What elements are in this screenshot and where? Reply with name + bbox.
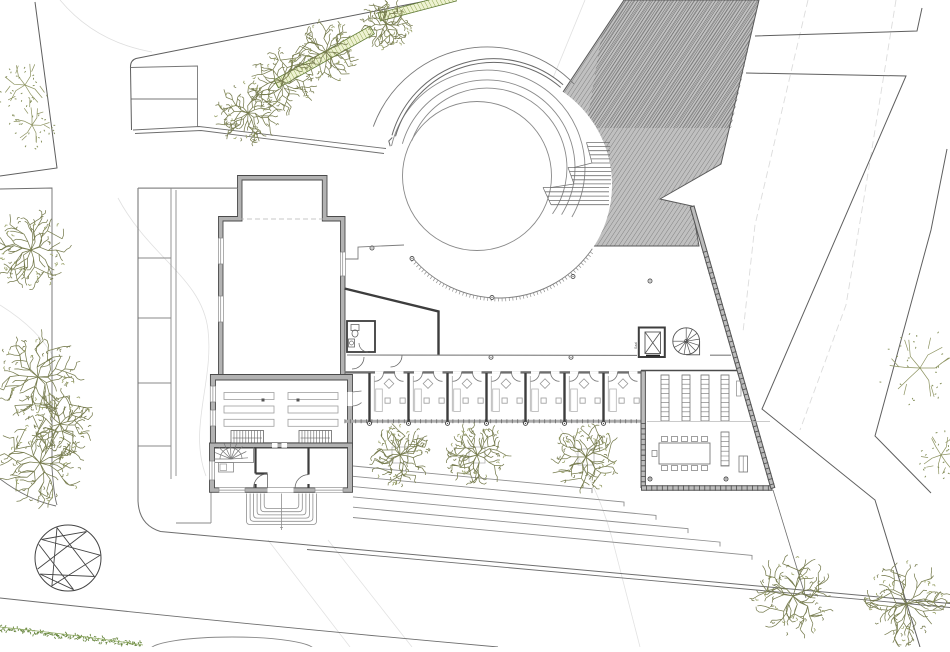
svg-text:Saal: Saal — [634, 342, 638, 349]
